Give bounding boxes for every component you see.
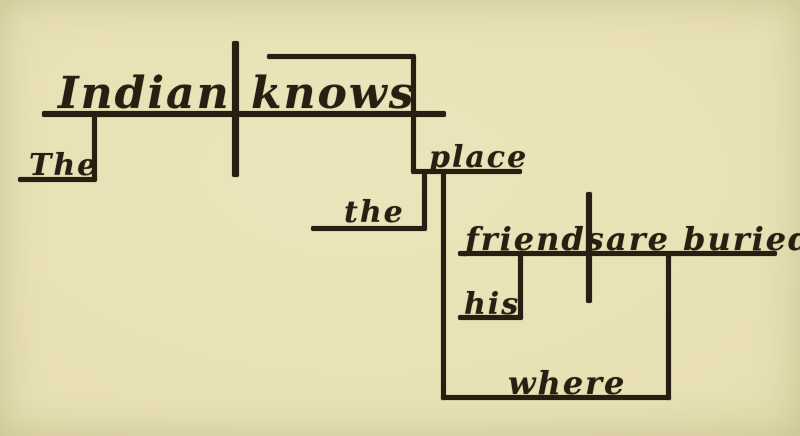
clause-connector-stem-left xyxy=(441,173,446,400)
word-subject: Indian xyxy=(58,72,231,116)
object-modifier-stem xyxy=(422,173,427,229)
word-clause-possessive: his xyxy=(464,290,520,320)
word-clause-subject: friends xyxy=(465,223,606,255)
word-clause-connector: where xyxy=(508,367,626,399)
sentence-diagram: Indian knows The place the friends are b… xyxy=(0,0,800,436)
word-clause-verb: are buried, xyxy=(606,223,800,255)
word-verb: knows xyxy=(251,72,415,116)
word-object: place xyxy=(429,143,528,173)
word-object-article: the xyxy=(344,198,405,228)
clause-connector-stem-right xyxy=(666,253,671,400)
word-subject-article: The xyxy=(29,151,98,181)
subject-verb-divider xyxy=(232,41,239,177)
object-elevation-line xyxy=(267,54,416,59)
